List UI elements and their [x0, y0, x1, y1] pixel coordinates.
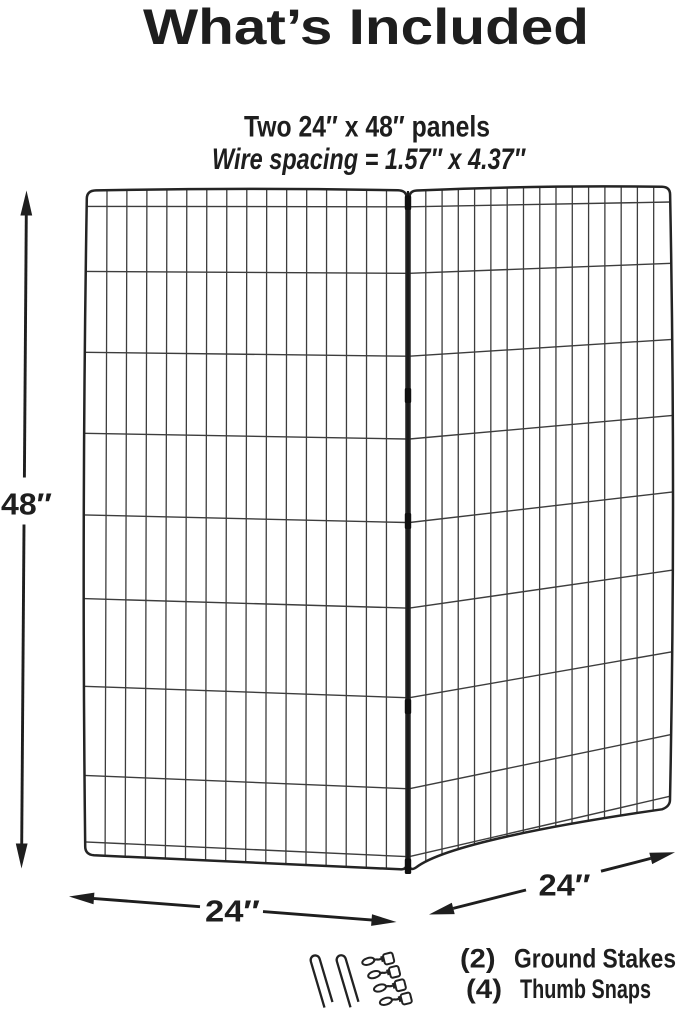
svg-text:What’s Included: What’s Included	[143, 0, 589, 55]
svg-text:48″: 48″	[1, 487, 52, 522]
svg-text:24″: 24″	[539, 867, 591, 902]
svg-text:Ground Stakes: Ground Stakes	[514, 944, 676, 974]
svg-text:Thumb Snaps: Thumb Snaps	[520, 974, 651, 1004]
svg-text:Wire spacing = 1.57″ x 4.37″: Wire spacing = 1.57″ x 4.37″	[212, 143, 526, 176]
svg-text:(2): (2)	[460, 944, 496, 974]
svg-text:Two 24″ x 48″ panels: Two 24″ x 48″ panels	[244, 111, 490, 144]
svg-text:(4): (4)	[466, 974, 502, 1004]
svg-text:24″: 24″	[205, 893, 260, 928]
